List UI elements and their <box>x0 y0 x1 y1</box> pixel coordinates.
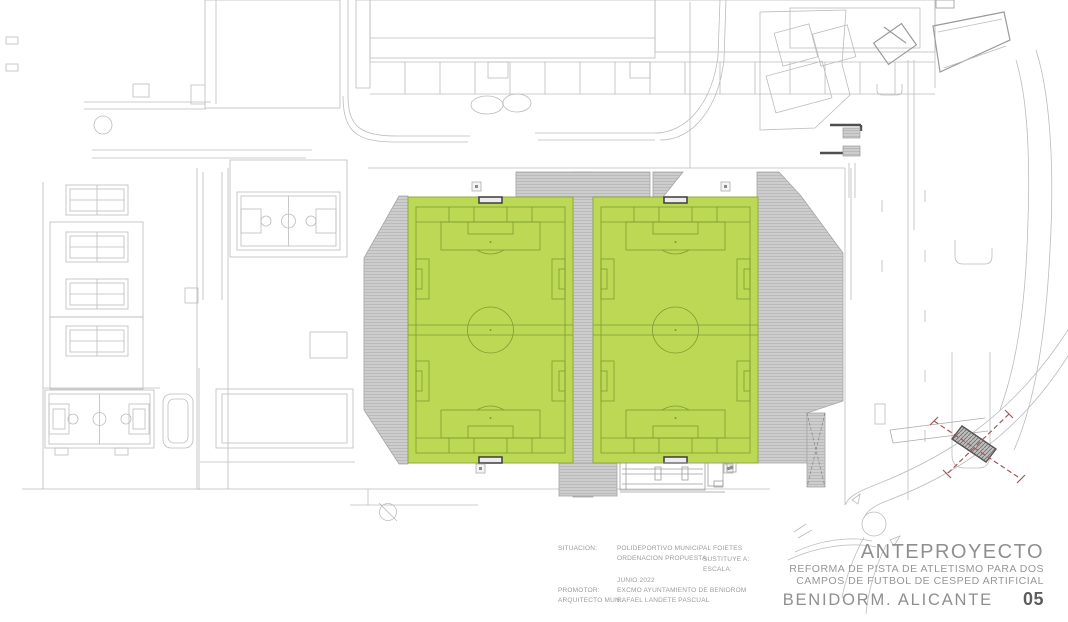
situacion-value: POLIDEPORTIVO MUNICIPAL FOIETES <box>617 546 742 553</box>
title-block: ANTEPROYECTO REFORMA DE PISTA DE ATLETIS… <box>783 541 1044 610</box>
situacion-label: SITUACION: <box>558 546 597 553</box>
access-ramp <box>807 413 825 487</box>
footbridge <box>890 418 996 462</box>
project-subtitle-line1: REFORMA DE PISTA DE ATLETISMO PARA DOS <box>783 563 1044 575</box>
sustituye-label: SUSTITUYE A: <box>703 557 749 564</box>
sheet-number: 05 <box>1023 589 1044 610</box>
promotor-label: PROMOTOR: <box>558 588 600 595</box>
site-plan-drawing <box>0 0 1068 622</box>
project-location: BENIDORM. ALICANTE <box>783 591 993 610</box>
promotor-value: EXCMO AYUNTAMIENTO DE BENIDROM <box>617 588 747 595</box>
project-subtitle-line2: CAMPOS DE FUTBOL DE CESPED ARTIFICIAL <box>783 575 1044 587</box>
site-plan-sheet: SITUACION: POLIDEPORTIVO MUNICIPAL FOIET… <box>0 0 1068 622</box>
escala-label: ESCALA: <box>703 567 732 574</box>
grandstand <box>620 463 736 492</box>
fecha-text: JUNIO 2022 <box>617 578 655 585</box>
ordenacion-text: ORDENACION PROPUESTA <box>617 556 706 563</box>
arquitecto-label: ARQUITECTO MUN.: <box>558 598 624 605</box>
football-field-left <box>408 197 573 463</box>
arquitecto-value: RAFAEL LANDETE PASCUAL <box>617 598 710 605</box>
project-phase-title: ANTEPROYECTO <box>783 541 1044 563</box>
access-gates <box>820 125 861 156</box>
football-field-right <box>593 197 758 463</box>
